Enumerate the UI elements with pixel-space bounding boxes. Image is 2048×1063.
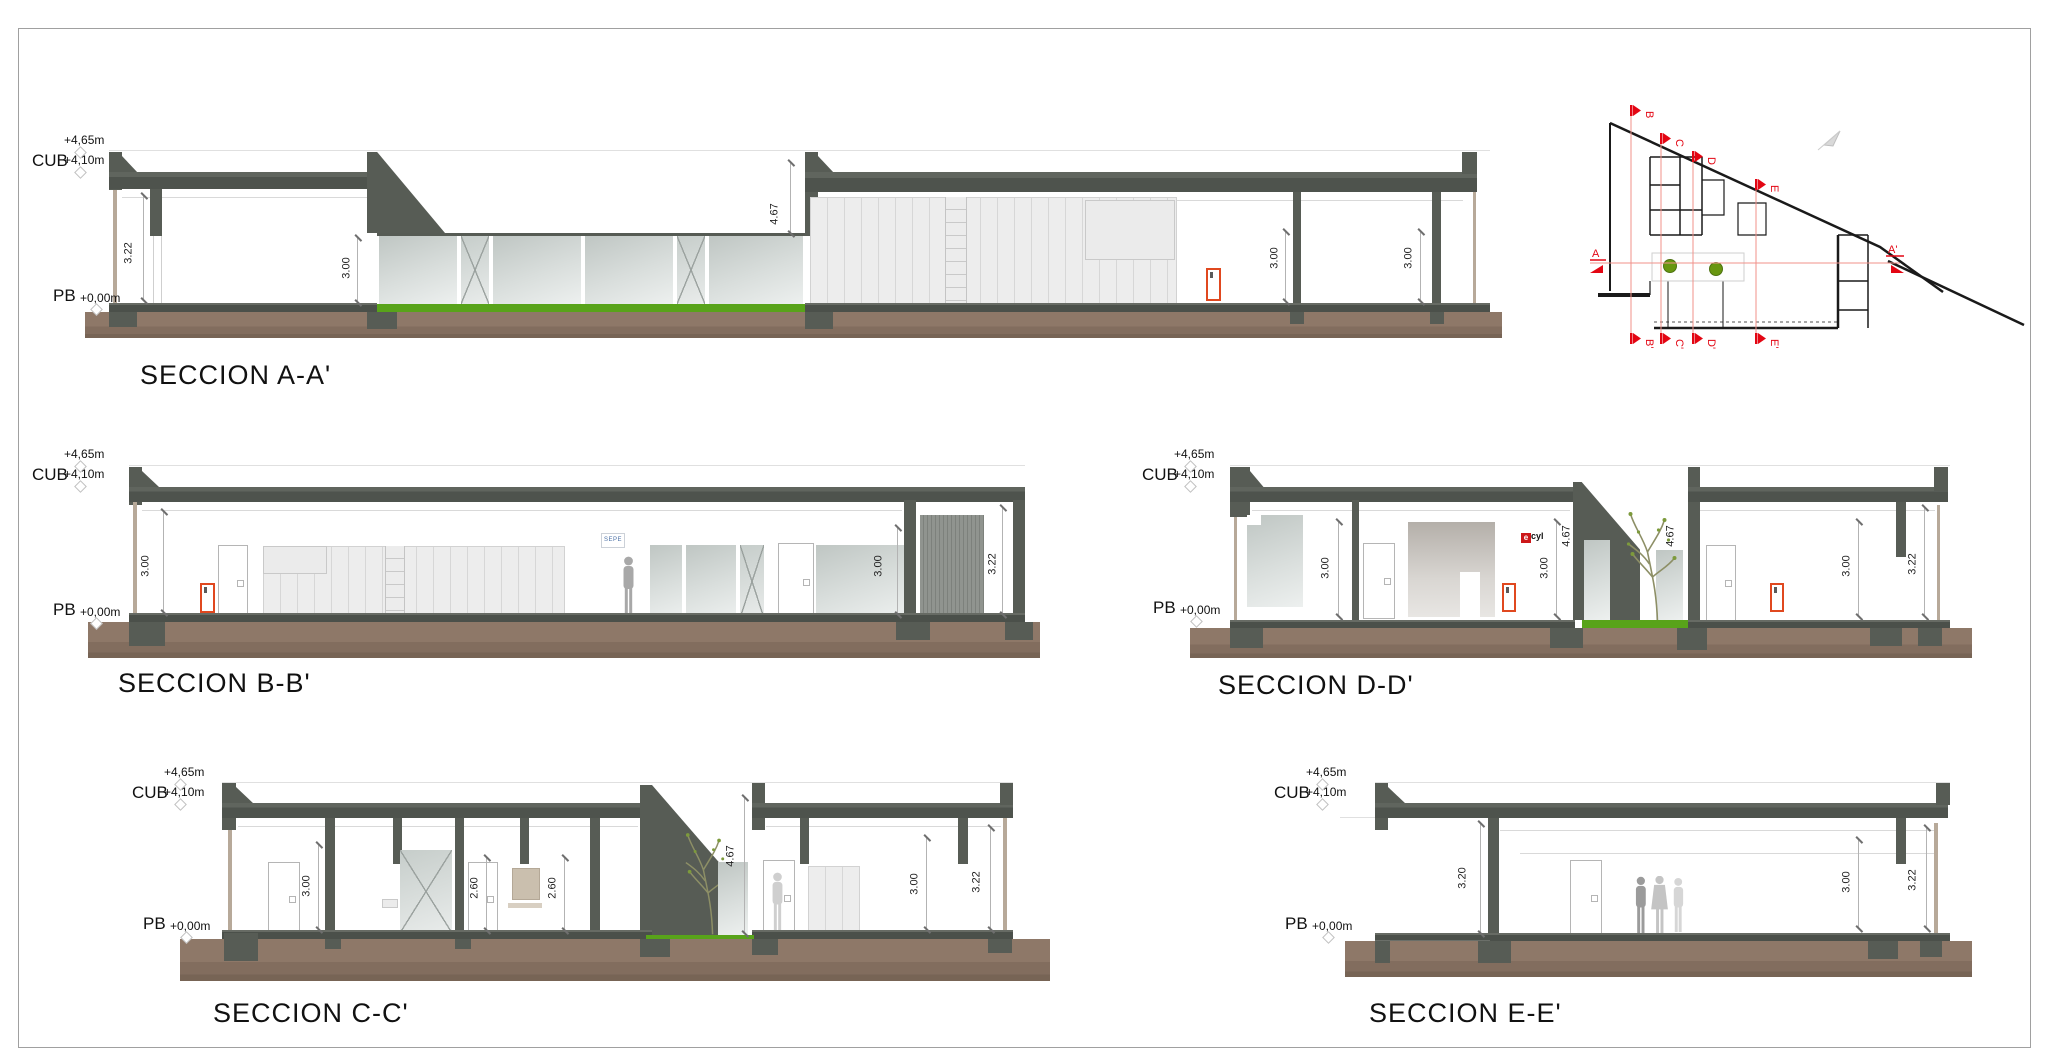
north-arrow-tail xyxy=(1818,131,1840,150)
dim-line xyxy=(564,858,565,930)
dim-label: 3.00 xyxy=(341,257,353,278)
level-410: +4,10m xyxy=(164,785,204,799)
level-000: +0,00m xyxy=(80,291,120,305)
dim-line xyxy=(1285,232,1286,301)
footing xyxy=(896,622,930,640)
dim-line xyxy=(1924,508,1925,616)
glazing-panel xyxy=(650,545,682,618)
level-cub: CUB xyxy=(132,783,168,803)
dim-label: 3.22 xyxy=(1907,869,1919,890)
level-pb: PB xyxy=(53,286,76,306)
door xyxy=(1363,543,1395,619)
footing xyxy=(752,939,778,955)
dim-label: 3.00 xyxy=(1539,557,1551,578)
marker-label-d-prime: D' xyxy=(1705,339,1717,349)
dim-line xyxy=(1926,828,1927,928)
section-title: SECCION C-C' xyxy=(213,998,409,1029)
footing xyxy=(1478,941,1511,963)
ground xyxy=(180,939,1050,981)
plan-room-cluster xyxy=(1650,157,1702,235)
dim-line xyxy=(1338,522,1339,616)
footing xyxy=(1430,312,1444,324)
dim-label: 4.67 xyxy=(1665,525,1677,546)
dim-line xyxy=(790,163,791,233)
marker-label-b-prime: B' xyxy=(1643,339,1655,348)
footing xyxy=(367,312,397,329)
corridor-volume xyxy=(1408,522,1495,617)
shower-screen xyxy=(400,850,452,933)
dim-label: 4.67 xyxy=(769,203,781,224)
ceiling-line xyxy=(1500,830,1934,831)
level-cub: CUB xyxy=(32,151,68,171)
shelf-ladder xyxy=(945,197,967,303)
glazed-door xyxy=(740,545,764,618)
level-410: +4,10m xyxy=(1306,785,1346,799)
level-465: +4,65m xyxy=(1174,447,1214,461)
facade-wall xyxy=(1234,517,1237,620)
dim-label: 3.00 xyxy=(909,873,921,894)
floor-slab xyxy=(1230,620,1575,628)
roof-upturn xyxy=(1934,467,1948,491)
ecyl-logo-e: e xyxy=(1521,533,1531,543)
facade-wall xyxy=(1937,505,1940,620)
ecyl-sign: ecyl xyxy=(1521,531,1544,543)
dim-line xyxy=(1480,824,1481,933)
dim-line xyxy=(163,512,164,612)
cut-wall xyxy=(1013,500,1025,620)
hanging-wall xyxy=(1896,502,1906,557)
facade-wall xyxy=(1003,818,1007,933)
footing xyxy=(1868,941,1898,959)
plan-tree xyxy=(1664,260,1677,273)
hanging-wall xyxy=(150,189,162,236)
footing xyxy=(1550,628,1583,648)
level-000: +0,00m xyxy=(1180,603,1220,617)
partition-wall xyxy=(1352,500,1359,620)
marker-label-b: B xyxy=(1643,111,1655,118)
ceiling-line xyxy=(1520,853,1934,854)
roof-slab xyxy=(1230,487,1578,502)
facade-wall xyxy=(113,190,117,303)
roof-upturn xyxy=(1000,783,1013,805)
facade-wall xyxy=(1934,823,1938,935)
marker-label-a-prime: A' xyxy=(1888,244,1897,256)
glass-notch xyxy=(1247,515,1261,525)
dim-line xyxy=(744,798,745,933)
plan-tree xyxy=(1710,263,1723,276)
marker-label-e: E xyxy=(1768,185,1780,192)
dim-label: 3.00 xyxy=(1269,247,1281,268)
footing xyxy=(109,312,137,327)
level-line xyxy=(222,782,1013,783)
level-line xyxy=(129,465,1025,466)
glazing-panel xyxy=(379,236,457,304)
marker-label-a: A xyxy=(1592,248,1600,260)
roof-slab xyxy=(129,487,1025,502)
hanging-wall xyxy=(1896,818,1906,864)
dim-label: 4.67 xyxy=(1561,525,1573,546)
key-plan: B C D E B' C' D' E' A A' xyxy=(1588,85,2033,355)
dim-label: 3.00 xyxy=(1403,247,1415,268)
footing xyxy=(129,622,165,646)
glazing-panel xyxy=(686,545,736,618)
level-pb: PB xyxy=(1153,598,1176,618)
marker-label-c: C xyxy=(1673,139,1685,147)
dim-line xyxy=(1002,508,1003,614)
roof-slab xyxy=(1375,803,1948,818)
frosted-glass xyxy=(1247,515,1303,607)
red-door-marker xyxy=(1770,583,1784,612)
level-cub: CUB xyxy=(1142,465,1178,485)
level-pb: PB xyxy=(143,914,166,934)
frame-line xyxy=(161,236,162,303)
dim-label: 3.00 xyxy=(1841,555,1853,576)
plan-room xyxy=(1702,180,1724,215)
hanging-wall xyxy=(800,818,809,864)
mirror xyxy=(512,868,540,900)
hanging-wall xyxy=(520,818,529,864)
partition-wall xyxy=(1293,192,1301,303)
dim-line xyxy=(1858,840,1859,928)
level-pb: PB xyxy=(1285,914,1308,934)
roof-slab xyxy=(805,172,1477,192)
roof-upturn xyxy=(1936,783,1950,805)
door xyxy=(218,545,248,621)
level-410: +4,10m xyxy=(64,467,104,481)
partition-wall xyxy=(325,818,335,933)
marker-label-c-prime: C' xyxy=(1673,339,1685,349)
section-title: SECCION A-A' xyxy=(140,360,331,391)
marker-label-e-prime: E' xyxy=(1768,339,1780,348)
footing xyxy=(805,312,833,329)
floor-slab xyxy=(1688,620,1950,628)
opening xyxy=(1460,572,1480,617)
facade-wall xyxy=(228,830,232,933)
footing xyxy=(1920,941,1942,957)
cut-wall xyxy=(904,500,916,620)
level-pb: PB xyxy=(53,600,76,620)
dim-label: 2.60 xyxy=(469,877,481,898)
door xyxy=(268,862,300,935)
level-line xyxy=(1230,465,1950,466)
cut-wall xyxy=(1488,818,1499,940)
wall-sink xyxy=(382,899,398,908)
red-door-marker xyxy=(1502,583,1516,612)
footing xyxy=(1290,312,1304,324)
section-title: SECCION E-E' xyxy=(1369,998,1562,1029)
footing xyxy=(455,939,471,949)
dim-label: 3.22 xyxy=(987,553,999,574)
footing xyxy=(1230,628,1263,648)
roof-slab xyxy=(752,803,1013,818)
footing xyxy=(1005,622,1033,640)
person-silhouette xyxy=(769,872,786,933)
dim-line xyxy=(897,528,898,614)
ceiling-line xyxy=(238,826,638,827)
level-cub: CUB xyxy=(1274,783,1310,803)
grass-strip xyxy=(377,304,805,312)
floor-slab xyxy=(129,613,1025,622)
marker-label-d: D xyxy=(1705,157,1717,165)
wardrobe xyxy=(808,866,860,934)
level-line xyxy=(109,150,1490,151)
dim-line xyxy=(990,828,991,929)
footing xyxy=(1677,628,1707,650)
dim-line xyxy=(1858,522,1859,616)
footing xyxy=(1918,628,1942,646)
frosted-wall xyxy=(816,545,904,618)
dim-label: 3.22 xyxy=(971,871,983,892)
frame-line xyxy=(153,236,154,303)
level-line xyxy=(1375,782,1950,783)
plan-wall xyxy=(1838,235,1868,328)
footing xyxy=(1870,628,1902,646)
dim-line xyxy=(143,196,144,300)
level-000: +0,00m xyxy=(1312,919,1352,933)
level-000: +0,00m xyxy=(80,605,120,619)
facade-wall xyxy=(1473,192,1476,303)
dim-label: 3.00 xyxy=(873,555,885,576)
glazing-panel xyxy=(585,236,673,304)
partition-wall xyxy=(455,818,464,933)
ceiling-line xyxy=(1252,510,1570,511)
dim-line xyxy=(1556,522,1557,616)
footing xyxy=(1375,941,1390,963)
shelf-ladder xyxy=(385,546,405,619)
level-465: +4,65m xyxy=(64,447,104,461)
grass-strip xyxy=(1582,620,1688,628)
level-000: +0,00m xyxy=(170,919,210,933)
footing xyxy=(988,939,1012,953)
door xyxy=(1570,860,1602,935)
dim-label: 3.20 xyxy=(1457,867,1469,888)
partition-wall xyxy=(1432,192,1441,303)
floor-slab xyxy=(109,303,377,312)
dim-label: 3.00 xyxy=(140,555,152,576)
section-title: SECCION B-B' xyxy=(118,668,311,699)
red-door-marker xyxy=(200,583,215,613)
ecyl-logo-text: cyl xyxy=(1531,531,1544,541)
dim-label: 3.00 xyxy=(1841,871,1853,892)
dim-label: 3.22 xyxy=(123,242,135,263)
roof-slab xyxy=(1688,487,1948,502)
level-410: +4,10m xyxy=(64,153,104,167)
dim-label: 3.00 xyxy=(1320,557,1332,578)
partition-wall xyxy=(590,818,600,933)
dim-line xyxy=(357,238,358,302)
dim-line xyxy=(318,845,319,929)
footing xyxy=(325,939,341,949)
plan-wall xyxy=(1668,281,1723,328)
dim-label: 2.60 xyxy=(547,877,559,898)
plan-room xyxy=(1738,203,1766,235)
dim-label: 4.67 xyxy=(725,845,737,866)
section-title: SECCION D-D' xyxy=(1218,670,1414,701)
floor-slab xyxy=(805,303,1490,312)
roof-slab xyxy=(222,803,652,818)
sepe-sign: SEPE xyxy=(601,533,625,548)
roof-slab xyxy=(109,172,377,189)
dim-line xyxy=(1420,232,1421,301)
upper-cabinet xyxy=(1085,200,1175,260)
glazed-door xyxy=(677,236,705,304)
dim-label: 3.00 xyxy=(301,875,313,896)
dim-label: 3.22 xyxy=(1907,553,1919,574)
glazing-panel xyxy=(709,236,803,304)
counter xyxy=(508,903,542,908)
level-410: +4,10m xyxy=(1174,467,1214,481)
footing xyxy=(640,939,670,957)
ceiling-line xyxy=(142,510,902,511)
dim-line xyxy=(926,838,927,929)
person-silhouette xyxy=(620,556,637,618)
floor-slab xyxy=(752,930,1013,939)
plan-site-line xyxy=(1888,261,2024,325)
footing xyxy=(224,933,258,961)
floor-slab xyxy=(222,930,652,939)
level-465: +4,65m xyxy=(1306,765,1346,779)
red-door-marker xyxy=(1206,268,1221,301)
level-465: +4,65m xyxy=(164,765,204,779)
door xyxy=(778,543,814,621)
roof-upturn xyxy=(1462,152,1477,174)
dim-line xyxy=(486,858,487,930)
hanging-wall xyxy=(958,818,968,864)
door xyxy=(1706,545,1736,621)
upper-cabinet xyxy=(263,546,327,574)
people-group xyxy=(1632,876,1690,935)
facade-wall xyxy=(133,502,137,620)
glazing-panel xyxy=(493,236,581,304)
louver-panel xyxy=(920,515,984,619)
glazed-door xyxy=(461,236,489,304)
level-465: +4,65m xyxy=(64,133,104,147)
level-cub: CUB xyxy=(32,465,68,485)
